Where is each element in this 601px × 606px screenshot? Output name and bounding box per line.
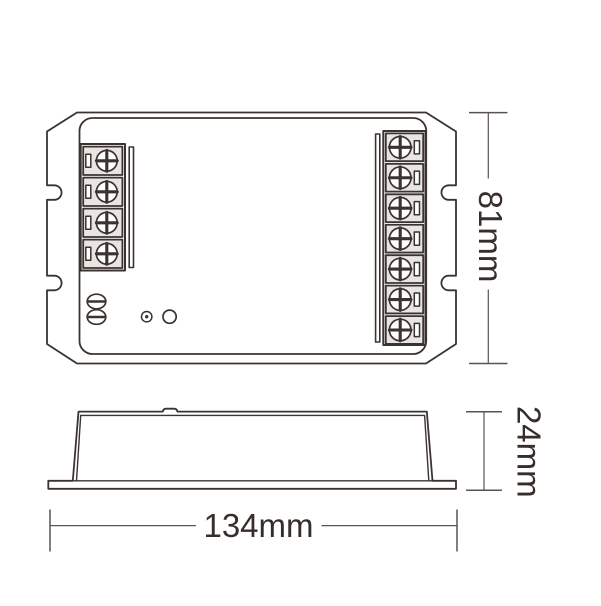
- terminal-wire-slot: [414, 323, 419, 336]
- terminal-cell: [83, 209, 122, 237]
- case-screw-icon: [87, 310, 106, 325]
- left-terminal-block-rail: [129, 147, 133, 268]
- side-profile-outline: [48, 409, 456, 489]
- terminal-wire-slot: [414, 141, 419, 154]
- depth-dimension-label: 24mm: [511, 406, 548, 498]
- case-screws: [87, 294, 106, 324]
- side-view: [48, 409, 456, 489]
- terminal-wire-slot: [414, 263, 419, 276]
- height-dimension-label: 81mm: [472, 191, 509, 283]
- top-view: [47, 113, 456, 364]
- terminal-cell: [83, 240, 122, 268]
- terminal-wire-slot: [414, 293, 419, 306]
- drawing-canvas: 81mm 24mm 134mm: [0, 0, 601, 606]
- terminal-wire-slot: [86, 185, 91, 198]
- terminal-cell: [386, 133, 423, 161]
- led-dot-icon: [145, 315, 148, 318]
- terminal-cell: [386, 164, 423, 192]
- dimension-width: 134mm: [50, 507, 457, 551]
- right-terminal-block-rail: [376, 134, 380, 342]
- terminal-wire-slot: [86, 216, 91, 229]
- terminal-cell: [386, 255, 423, 283]
- right-terminal-block: [376, 131, 426, 345]
- terminal-wire-slot: [414, 202, 419, 215]
- width-dimension-label: 134mm: [203, 507, 313, 544]
- terminal-wire-slot: [414, 232, 419, 245]
- dimension-height: 81mm: [469, 113, 509, 364]
- terminal-wire-slot: [86, 247, 91, 260]
- right-terminal-cells: [386, 133, 423, 344]
- enclosure-body: [80, 118, 427, 354]
- terminal-cell: [386, 194, 423, 222]
- terminal-cell: [386, 286, 423, 314]
- terminal-wire-slot: [86, 154, 91, 167]
- dimension-drawing: 81mm 24mm 134mm: [0, 0, 601, 606]
- terminal-cell: [386, 316, 423, 344]
- side-profile-lid-line: [77, 415, 429, 480]
- led-indicator: [142, 312, 152, 322]
- terminal-cell: [386, 225, 423, 253]
- button-hole: [163, 310, 176, 323]
- terminal-wire-slot: [414, 171, 419, 184]
- terminal-cell: [83, 178, 122, 206]
- left-terminal-cells: [83, 147, 122, 268]
- case-screw-icon: [87, 294, 106, 309]
- terminal-cell: [83, 147, 122, 175]
- dimension-depth: 24mm: [466, 406, 548, 498]
- left-terminal-block: [81, 144, 134, 271]
